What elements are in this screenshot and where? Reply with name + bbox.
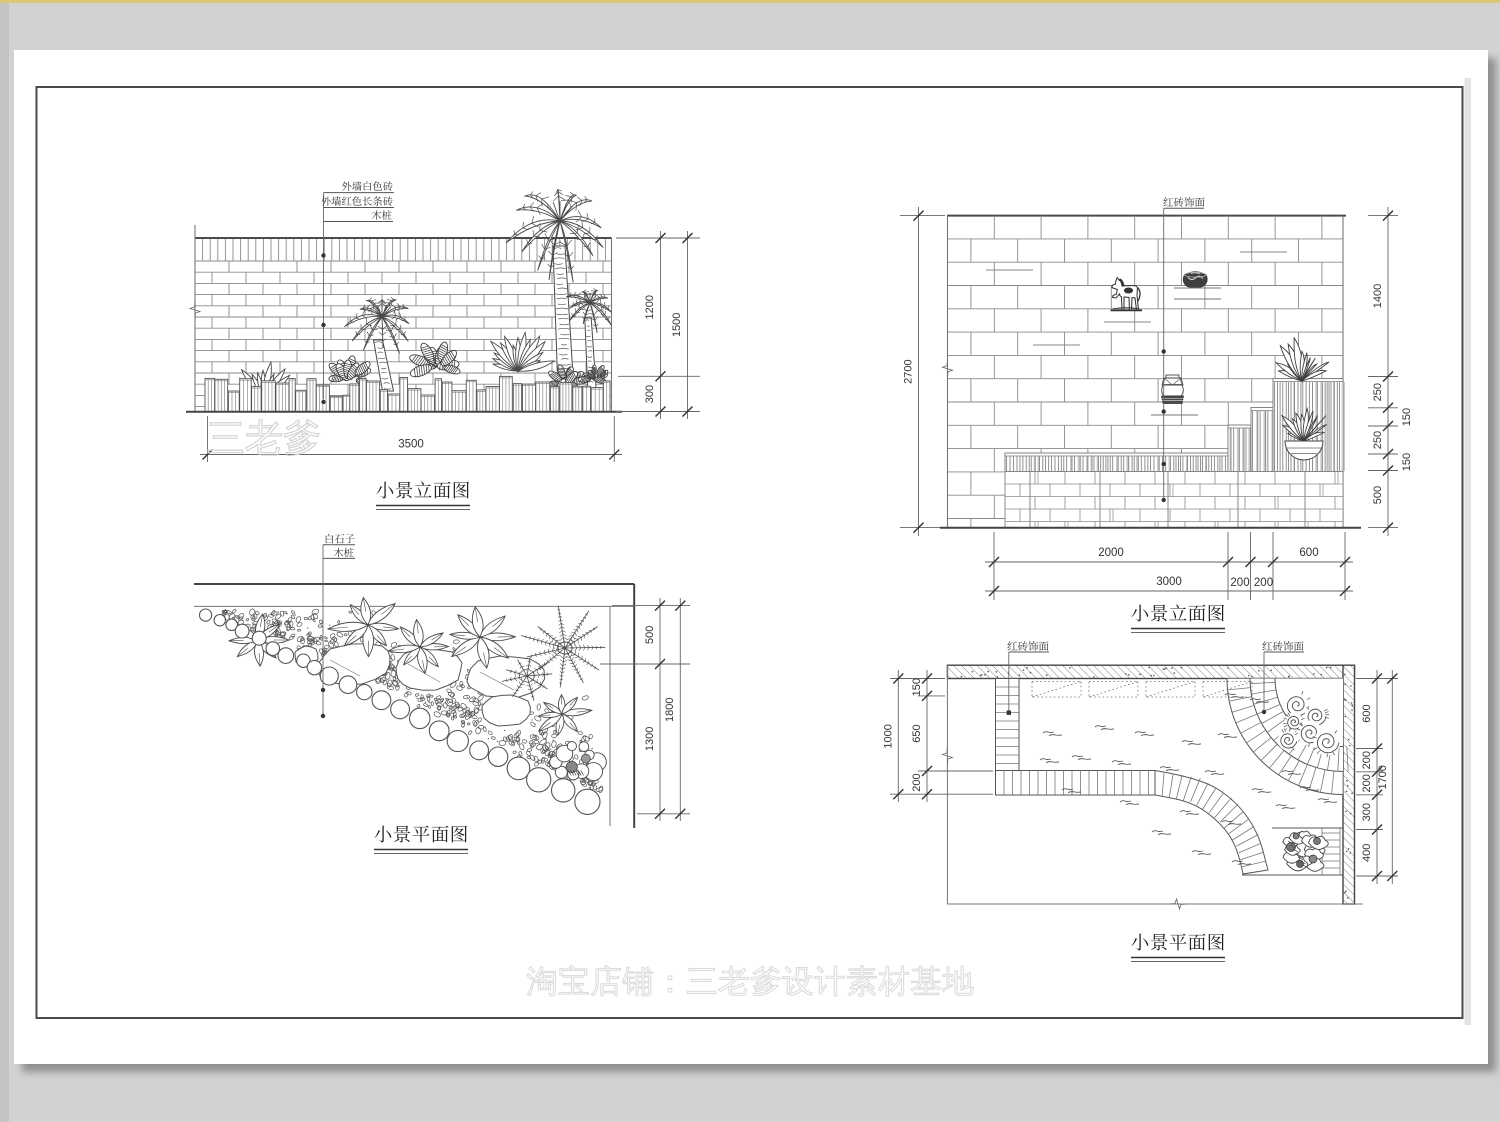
svg-text:1800: 1800 [664,697,676,721]
svg-text:1500: 1500 [671,313,683,337]
svg-text:300: 300 [1361,803,1373,821]
svg-text:2000: 2000 [1098,547,1124,559]
svg-text:2700: 2700 [903,359,915,383]
svg-text:1200: 1200 [644,295,656,319]
svg-text:500: 500 [644,626,656,644]
svg-text:1000: 1000 [883,724,895,748]
svg-text:250: 250 [1372,431,1384,449]
svg-text:150: 150 [1401,453,1413,471]
svg-text:150: 150 [1401,408,1413,426]
svg-text:200: 200 [1361,751,1373,769]
svg-text:1400: 1400 [1372,284,1384,308]
svg-text:250: 250 [1372,383,1384,401]
svg-text:3500: 3500 [398,439,424,451]
svg-text:200: 200 [1254,577,1273,589]
svg-text:600: 600 [1361,704,1373,722]
svg-text:600: 600 [1299,547,1318,559]
svg-text:500: 500 [1372,486,1384,504]
svg-text:200: 200 [911,773,923,791]
svg-text:650: 650 [911,724,923,742]
svg-text:3000: 3000 [1156,576,1182,588]
svg-text:400: 400 [1361,844,1373,862]
svg-text:300: 300 [644,385,656,403]
svg-text:200: 200 [1361,774,1373,792]
svg-text:1300: 1300 [644,727,656,751]
svg-text:1700: 1700 [1377,765,1389,789]
svg-text:150: 150 [911,678,923,696]
svg-text:200: 200 [1230,577,1249,589]
